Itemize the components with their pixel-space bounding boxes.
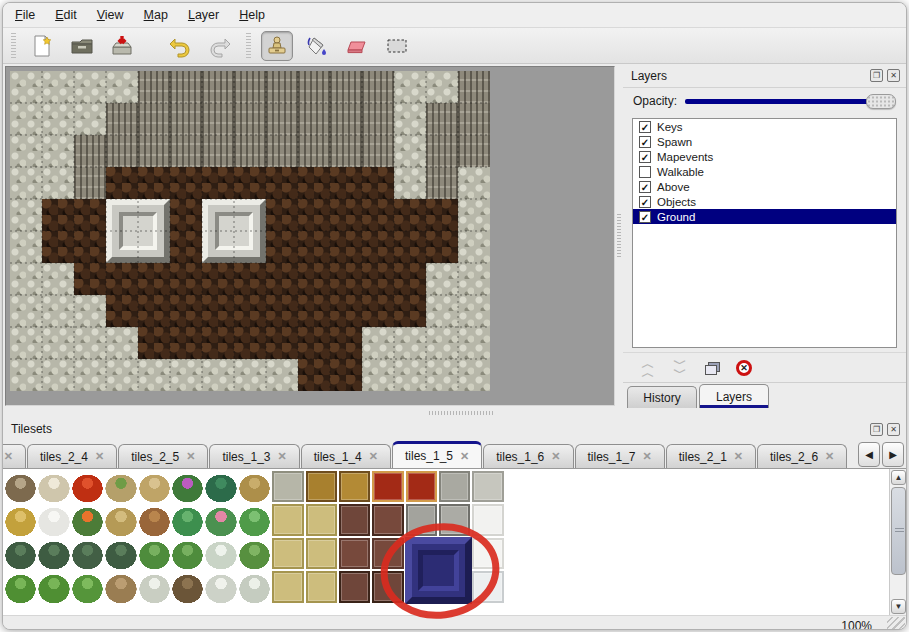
- map-tile-brown-floor[interactable]: [394, 231, 426, 263]
- layer-delete-button[interactable]: ✕: [733, 357, 755, 379]
- layer-checkbox[interactable]: ✓: [639, 121, 651, 133]
- map-tile-dark-cliff[interactable]: [106, 103, 138, 135]
- tileset-tab-tiles_1_7[interactable]: tiles_1_7✕: [575, 444, 665, 468]
- new-map-button[interactable]: [26, 31, 58, 61]
- tileset-palette[interactable]: [4, 470, 705, 604]
- palette-empty-cell: [538, 570, 571, 603]
- fill-tool-button[interactable]: [301, 31, 333, 61]
- map-tile-light-rock[interactable]: [42, 327, 74, 359]
- tab-close-icon[interactable]: ✕: [277, 450, 286, 463]
- map-tile-brown-floor[interactable]: [106, 295, 138, 327]
- map-tile-dark-cliff[interactable]: [266, 103, 298, 135]
- map-tile-dark-cliff[interactable]: [426, 167, 458, 199]
- map-tile-brown-floor[interactable]: [330, 199, 362, 231]
- palette-tile-brown-table[interactable]: [371, 503, 404, 536]
- map-tile-light-rock[interactable]: [74, 71, 106, 103]
- map-tile-dark-cliff[interactable]: [170, 103, 202, 135]
- redo-arrow-icon: [207, 34, 233, 58]
- tileset-tab-3[interactable]: 3✕: [3, 444, 26, 468]
- map-tile-brown-floor[interactable]: [298, 167, 330, 199]
- palette-tile-red-carpet[interactable]: [405, 470, 438, 503]
- map-tile-light-rock[interactable]: [394, 135, 426, 167]
- map-tile-dark-cliff[interactable]: [234, 71, 266, 103]
- map-tile-brown-floor[interactable]: [266, 231, 298, 263]
- tab-close-icon[interactable]: ✕: [186, 450, 195, 463]
- palette-tile-dark-palm-plant[interactable]: [204, 470, 237, 503]
- palette-tile-brown-tile[interactable]: [338, 537, 371, 570]
- palette-tile-small-bushes[interactable]: [4, 537, 37, 570]
- map-tile-dark-cliff[interactable]: [362, 135, 394, 167]
- map-tile-dark-cliff[interactable]: [298, 103, 330, 135]
- resize-grip-icon[interactable]: [887, 617, 905, 630]
- map-tile-light-rock[interactable]: [426, 71, 458, 103]
- palette-tile-gold-table[interactable]: [305, 470, 338, 503]
- map-tile-light-rock[interactable]: [74, 327, 106, 359]
- map-tile-dark-cliff[interactable]: [426, 103, 458, 135]
- palette-tile-stone-arch[interactable]: [438, 503, 471, 536]
- menu-item-view[interactable]: View: [97, 8, 124, 22]
- map-tile-dark-cliff[interactable]: [138, 103, 170, 135]
- tileset-tab-tiles_1_3[interactable]: tiles_1_3✕: [209, 444, 299, 468]
- palette-empty-cell: [572, 537, 605, 570]
- layer-row-walkable[interactable]: Walkable: [633, 164, 896, 179]
- map-tile-light-rock[interactable]: [458, 199, 490, 231]
- palette-tile-snowy-tree[interactable]: [204, 570, 237, 603]
- opacity-row: Opacity:: [623, 88, 906, 114]
- main-area: Layers ❐ ✕ Opacity: ✓Keys✓Spawn✓Mapevent…: [3, 64, 906, 408]
- map-tile-brown-floor[interactable]: [362, 231, 394, 263]
- palette-empty-cell: [672, 570, 705, 603]
- palette-tile-white-fluffy-tile[interactable]: [471, 570, 504, 603]
- map-tile-light-rock[interactable]: [106, 71, 138, 103]
- menu-item-map[interactable]: Map: [144, 8, 168, 22]
- dock-tabs: HistoryLayers: [623, 382, 906, 408]
- palette-tile-snowy-tree[interactable]: [238, 570, 271, 603]
- palette-tile-conifer-bush[interactable]: [37, 570, 70, 603]
- layer-checkbox[interactable]: ✓: [639, 196, 651, 208]
- map-tile-dark-cliff[interactable]: [74, 167, 106, 199]
- map-tile-light-rock[interactable]: [394, 327, 426, 359]
- map-tile-dark-cliff[interactable]: [202, 71, 234, 103]
- palette-empty-cell: [672, 503, 705, 536]
- map-tile-light-rock[interactable]: [394, 359, 426, 391]
- palette-tile-khaki-floor[interactable]: [305, 570, 338, 603]
- blue-table-tile-selected[interactable]: [405, 537, 472, 604]
- map-tile-brown-floor[interactable]: [394, 295, 426, 327]
- palette-tile-snow-mound[interactable]: [37, 503, 70, 536]
- palette-tile-small-bushes[interactable]: [37, 537, 70, 570]
- palette-tile-brown-tile[interactable]: [371, 537, 404, 570]
- tileset-tab-tiles_2_1[interactable]: tiles_2_1✕: [666, 444, 756, 468]
- map-tile-light-rock[interactable]: [138, 359, 170, 391]
- tilesets-titlebar: Tilesets ❐ ✕: [3, 418, 906, 440]
- layer-row-mapevents[interactable]: ✓Mapevents: [633, 149, 896, 164]
- map-tile-light-rock[interactable]: [42, 167, 74, 199]
- map-tile-dark-cliff[interactable]: [234, 135, 266, 167]
- palette-tile-palm-tree[interactable]: [171, 537, 204, 570]
- map-tile-light-rock[interactable]: [426, 359, 458, 391]
- palette-tile-termite-mound[interactable]: [138, 470, 171, 503]
- map-tile-brown-floor[interactable]: [106, 263, 138, 295]
- layer-checkbox[interactable]: ✓: [639, 181, 651, 193]
- palette-tile-grass-tuft[interactable]: [104, 503, 137, 536]
- map-tile-brown-floor[interactable]: [170, 327, 202, 359]
- scrollbar-thumb[interactable]: [891, 487, 906, 575]
- map-tile-brown-floor[interactable]: [202, 295, 234, 327]
- map-tile-brown-floor[interactable]: [138, 263, 170, 295]
- eraser-tool-button[interactable]: [341, 31, 373, 61]
- float-icon[interactable]: ❐: [870, 69, 883, 82]
- map-tile-light-rock[interactable]: [426, 263, 458, 295]
- layer-row-objects[interactable]: ✓Objects: [633, 194, 896, 209]
- palette-tile-palm-tree[interactable]: [138, 537, 171, 570]
- map-tile-brown-floor[interactable]: [234, 167, 266, 199]
- layer-down-button[interactable]: ﹀﹀: [669, 357, 691, 379]
- map-tile-brown-floor[interactable]: [298, 231, 330, 263]
- map-viewport[interactable]: [5, 66, 615, 406]
- map-tile-brown-floor[interactable]: [138, 295, 170, 327]
- map-tile-brown-floor[interactable]: [138, 167, 170, 199]
- map-tile-brown-floor[interactable]: [298, 295, 330, 327]
- map-tile-brown-floor[interactable]: [202, 263, 234, 295]
- tab-close-icon[interactable]: ✕: [551, 450, 560, 463]
- select-tool-button[interactable]: [381, 31, 413, 61]
- palette-tile-dark-trunk-tree[interactable]: [171, 570, 204, 603]
- opacity-slider-handle[interactable]: [866, 94, 896, 109]
- stone-block-object[interactable]: [202, 199, 266, 263]
- map-tile-brown-floor[interactable]: [298, 359, 330, 391]
- map-tile-light-rock[interactable]: [234, 359, 266, 391]
- layer-up-button[interactable]: ︿︿: [637, 357, 659, 379]
- palette-tile-lily-pad[interactable]: [171, 503, 204, 536]
- map-tile-light-rock[interactable]: [10, 71, 42, 103]
- layer-row-spawn[interactable]: ✓Spawn: [633, 134, 896, 149]
- layer-checkbox[interactable]: ✓: [639, 136, 651, 148]
- close-icon[interactable]: ✕: [887, 69, 900, 82]
- map-tile-light-rock[interactable]: [10, 327, 42, 359]
- map-tile-brown-floor[interactable]: [42, 199, 74, 231]
- map-tile-brown-floor[interactable]: [266, 327, 298, 359]
- map-tile-light-rock[interactable]: [202, 359, 234, 391]
- map-tile-brown-floor[interactable]: [170, 167, 202, 199]
- map-tile-dark-cliff[interactable]: [138, 71, 170, 103]
- map-tile-dark-cliff[interactable]: [298, 135, 330, 167]
- palette-tile-small-bushes[interactable]: [104, 537, 137, 570]
- map-tile-light-rock[interactable]: [42, 71, 74, 103]
- map-tile-dark-cliff[interactable]: [266, 71, 298, 103]
- tab-label: tiles_2_1: [679, 450, 727, 464]
- map-tile-dark-cliff[interactable]: [138, 135, 170, 167]
- palette-tile-lily-pad[interactable]: [238, 503, 271, 536]
- map-tile-dark-cliff[interactable]: [330, 103, 362, 135]
- palette-tile-stone-arch[interactable]: [405, 503, 438, 536]
- map-tile-brown-floor[interactable]: [362, 199, 394, 231]
- palette-tile-brown-table[interactable]: [338, 503, 371, 536]
- map-tile-brown-floor[interactable]: [298, 327, 330, 359]
- tileset-tab-tiles_2_4[interactable]: tiles_2_4✕: [27, 444, 117, 468]
- map-tile-brown-floor[interactable]: [426, 231, 458, 263]
- map-tile-dark-cliff[interactable]: [298, 71, 330, 103]
- stamp-icon: [265, 34, 289, 58]
- layer-checkbox[interactable]: ✓: [639, 211, 651, 223]
- layer-row-ground[interactable]: ✓Ground: [633, 209, 896, 224]
- menu-item-edit[interactable]: Edit: [55, 8, 77, 22]
- map-tile-light-rock[interactable]: [426, 327, 458, 359]
- map-tile-dark-cliff[interactable]: [458, 135, 490, 167]
- undo-button[interactable]: [164, 31, 196, 61]
- map-tile-brown-floor[interactable]: [202, 327, 234, 359]
- palette-tile-dead-trunk-tree[interactable]: [104, 570, 137, 603]
- map-tile-brown-floor[interactable]: [394, 199, 426, 231]
- menu-item-file[interactable]: File: [15, 8, 35, 22]
- palette-tile-small-bushes[interactable]: [71, 537, 104, 570]
- tileset-tab-tiles_1_6[interactable]: tiles_1_6✕: [483, 444, 573, 468]
- palette-tile-purple-flower-bush[interactable]: [171, 470, 204, 503]
- palette-tile-conifer-bush[interactable]: [71, 570, 104, 603]
- map-tile-light-rock[interactable]: [10, 199, 42, 231]
- zoom-level: 100%: [841, 619, 872, 630]
- palette-tile-brown-table-legs[interactable]: [371, 570, 404, 603]
- map-tile-brown-floor[interactable]: [330, 231, 362, 263]
- app-window: FileEditViewMapLayerHelp: [2, 2, 907, 630]
- tileset-tab-tiles_1_5[interactable]: tiles_1_5✕: [392, 441, 482, 468]
- toolbar-grip[interactable]: [246, 33, 251, 59]
- scroll-down-icon[interactable]: ▼: [891, 599, 906, 614]
- palette-tile-straw-mound[interactable]: [4, 503, 37, 536]
- map-tile-light-rock[interactable]: [42, 295, 74, 327]
- map-tile-light-rock[interactable]: [362, 327, 394, 359]
- palette-empty-cell: [638, 537, 671, 570]
- map-tile-brown-floor[interactable]: [330, 295, 362, 327]
- map-tile-light-rock[interactable]: [42, 263, 74, 295]
- map-tile-dark-cliff[interactable]: [362, 103, 394, 135]
- palette-tile-stone-floor-tile[interactable]: [271, 470, 304, 503]
- palette-tile-gray-stone-tile[interactable]: [471, 470, 504, 503]
- map-tile-light-rock[interactable]: [394, 103, 426, 135]
- palette-tile-red-carpet[interactable]: [371, 470, 404, 503]
- map-tile-brown-floor[interactable]: [42, 231, 74, 263]
- map-tile-light-rock[interactable]: [74, 295, 106, 327]
- open-button[interactable]: [66, 31, 98, 61]
- menu-item-layer[interactable]: Layer: [188, 8, 219, 22]
- opacity-slider[interactable]: [685, 93, 896, 109]
- layer-actions: ︿︿ ﹀﹀ ✕: [623, 352, 906, 382]
- horizontal-splitter[interactable]: [3, 408, 906, 418]
- palette-empty-cell: [505, 537, 538, 570]
- scroll-right-icon[interactable]: ▶: [882, 442, 904, 467]
- vertical-splitter[interactable]: [615, 64, 623, 408]
- tab-close-icon[interactable]: ✕: [460, 450, 469, 463]
- map-tile-light-rock[interactable]: [10, 103, 42, 135]
- layer-row-keys[interactable]: ✓Keys: [633, 119, 896, 134]
- map-tile-brown-floor[interactable]: [362, 263, 394, 295]
- map-tile-brown-floor[interactable]: [266, 295, 298, 327]
- map-tile-dark-cliff[interactable]: [106, 135, 138, 167]
- map-tile-light-rock[interactable]: [74, 359, 106, 391]
- palette-tile-khaki-floor[interactable]: [271, 570, 304, 603]
- palette-tile-khaki-floor[interactable]: [271, 503, 304, 536]
- map-tile-light-rock[interactable]: [458, 263, 490, 295]
- map-tile-dark-cliff[interactable]: [362, 71, 394, 103]
- map-tile-light-rock[interactable]: [10, 359, 42, 391]
- map-tile-dark-cliff[interactable]: [202, 103, 234, 135]
- palette-tile-white-fluffy-tile[interactable]: [471, 503, 504, 536]
- map-tile-brown-floor[interactable]: [234, 295, 266, 327]
- map-tile-brown-floor[interactable]: [170, 231, 202, 263]
- close-icon[interactable]: ✕: [887, 423, 900, 436]
- map-tile-light-rock[interactable]: [10, 231, 42, 263]
- map-tile-light-rock[interactable]: [106, 359, 138, 391]
- map-tile-brown-floor[interactable]: [394, 263, 426, 295]
- map-tile-brown-floor[interactable]: [234, 327, 266, 359]
- map-tile-brown-floor[interactable]: [234, 263, 266, 295]
- map-tile-light-rock[interactable]: [426, 295, 458, 327]
- map-tile-brown-floor[interactable]: [266, 199, 298, 231]
- map-tile-light-rock[interactable]: [458, 359, 490, 391]
- redo-button[interactable]: [204, 31, 236, 61]
- palette-tile-dry-plant[interactable]: [238, 470, 271, 503]
- map-tile-light-rock[interactable]: [394, 167, 426, 199]
- map-tile-brown-floor[interactable]: [266, 263, 298, 295]
- scroll-up-icon[interactable]: ▲: [891, 470, 906, 485]
- map-tile-brown-floor[interactable]: [362, 295, 394, 327]
- map-tile-dark-cliff[interactable]: [458, 103, 490, 135]
- map-tile-light-rock[interactable]: [42, 359, 74, 391]
- map-tile-brown-floor[interactable]: [202, 167, 234, 199]
- map-tile-brown-floor[interactable]: [138, 327, 170, 359]
- palette-tile-brown-table-legs[interactable]: [338, 570, 371, 603]
- palette-scrollbar[interactable]: ▲ ▼: [889, 469, 906, 615]
- palette-tile-white-fluffy-tile[interactable]: [471, 537, 504, 570]
- tab-close-icon[interactable]: ✕: [734, 450, 743, 463]
- palette-tile-khaki-floor[interactable]: [271, 537, 304, 570]
- map-tile-brown-floor[interactable]: [266, 167, 298, 199]
- status-bar: 100%: [3, 615, 906, 630]
- map-tile-dark-cliff[interactable]: [266, 135, 298, 167]
- map-tile-dark-cliff[interactable]: [202, 135, 234, 167]
- map-canvas-panel: [3, 64, 615, 408]
- map-tile-light-rock[interactable]: [74, 103, 106, 135]
- map-tile-brown-floor[interactable]: [330, 359, 362, 391]
- scroll-left-icon[interactable]: ◀: [858, 442, 880, 467]
- map-tile-dark-cliff[interactable]: [330, 135, 362, 167]
- tileset-tab-tiles_2_6[interactable]: tiles_2_6✕: [757, 444, 847, 468]
- palette-empty-cell: [638, 503, 671, 536]
- menu-item-help[interactable]: Help: [239, 8, 265, 22]
- map-tile-light-rock[interactable]: [458, 295, 490, 327]
- palette-tile-snowy-palm-tree[interactable]: [204, 537, 237, 570]
- map-tile-brown-floor[interactable]: [330, 167, 362, 199]
- layer-checkbox[interactable]: [639, 166, 651, 178]
- map-tile-light-rock[interactable]: [42, 135, 74, 167]
- tab-close-icon[interactable]: ✕: [643, 450, 652, 463]
- map-tile-light-rock[interactable]: [170, 359, 202, 391]
- map-tile-light-rock[interactable]: [10, 263, 42, 295]
- tab-history[interactable]: History: [627, 386, 697, 408]
- map-canvas[interactable]: [10, 71, 490, 391]
- layer-duplicate-button[interactable]: [701, 357, 723, 379]
- map-tile-brown-floor[interactable]: [426, 199, 458, 231]
- map-tile-light-rock[interactable]: [458, 231, 490, 263]
- map-tile-dark-cliff[interactable]: [74, 135, 106, 167]
- map-tile-brown-floor[interactable]: [362, 167, 394, 199]
- map-tile-dark-cliff[interactable]: [170, 71, 202, 103]
- map-tile-dark-cliff[interactable]: [458, 71, 490, 103]
- palette-tile-branch-tree[interactable]: [37, 470, 70, 503]
- map-tile-light-rock[interactable]: [458, 327, 490, 359]
- layer-row-above[interactable]: ✓Above: [633, 179, 896, 194]
- tab-close-icon[interactable]: ✕: [95, 450, 104, 463]
- palette-tile-conifer-bush[interactable]: [4, 570, 37, 603]
- map-tile-light-rock[interactable]: [10, 135, 42, 167]
- selection-rect-icon: [384, 34, 410, 58]
- map-tile-brown-floor[interactable]: [330, 263, 362, 295]
- tab-close-icon[interactable]: ✕: [369, 450, 378, 463]
- palette-tile-pink-flower-lily[interactable]: [204, 503, 237, 536]
- map-tile-light-rock[interactable]: [362, 359, 394, 391]
- map-tile-light-rock[interactable]: [10, 167, 42, 199]
- toolbar-grip[interactable]: [11, 33, 16, 59]
- tileset-tab-tiles_2_5[interactable]: tiles_2_5✕: [118, 444, 208, 468]
- palette-tile-palm-tree[interactable]: [238, 537, 271, 570]
- map-tile-brown-floor[interactable]: [298, 263, 330, 295]
- map-tile-light-rock[interactable]: [394, 71, 426, 103]
- palette-tile-rafflesia-flower[interactable]: [71, 470, 104, 503]
- map-tile-brown-floor[interactable]: [74, 263, 106, 295]
- tab-layers[interactable]: Layers: [699, 384, 769, 408]
- layer-list: ✓Keys✓Spawn✓MapeventsWalkable✓Above✓Obje…: [632, 118, 897, 348]
- tileset-tab-tiles_1_4[interactable]: tiles_1_4✕: [301, 444, 391, 468]
- float-icon[interactable]: ❐: [870, 423, 883, 436]
- map-tile-dark-cliff[interactable]: [234, 103, 266, 135]
- stamp-tool-button[interactable]: [261, 31, 293, 61]
- map-tile-brown-floor[interactable]: [170, 199, 202, 231]
- palette-empty-cell: [605, 503, 638, 536]
- stone-block-object[interactable]: [106, 199, 170, 263]
- map-tile-light-rock[interactable]: [106, 327, 138, 359]
- layer-checkbox[interactable]: ✓: [639, 151, 651, 163]
- palette-tile-khaki-floor[interactable]: [305, 537, 338, 570]
- splitter-grip: [617, 214, 621, 258]
- tab-label: tiles_1_5: [405, 449, 453, 463]
- map-tile-brown-floor[interactable]: [330, 327, 362, 359]
- map-tile-dark-cliff[interactable]: [170, 135, 202, 167]
- palette-tile-grass-stump[interactable]: [104, 470, 137, 503]
- palette-tile-gray-stone-tile[interactable]: [438, 470, 471, 503]
- map-tile-brown-floor[interactable]: [106, 167, 138, 199]
- map-tile-light-rock[interactable]: [10, 295, 42, 327]
- palette-tile-flower-bush[interactable]: [71, 503, 104, 536]
- map-tile-light-rock[interactable]: [458, 167, 490, 199]
- palette-tile-fallen-leaves[interactable]: [138, 503, 171, 536]
- map-tile-brown-floor[interactable]: [74, 199, 106, 231]
- save-button[interactable]: [106, 31, 138, 61]
- tab-close-icon[interactable]: ✕: [4, 450, 13, 463]
- map-tile-brown-floor[interactable]: [298, 199, 330, 231]
- palette-tile-snowy-tree[interactable]: [138, 570, 171, 603]
- map-tile-brown-floor[interactable]: [74, 231, 106, 263]
- map-tile-light-rock[interactable]: [266, 359, 298, 391]
- palette-tile-khaki-floor[interactable]: [305, 503, 338, 536]
- palette-tile-dead-tree[interactable]: [4, 470, 37, 503]
- map-tile-brown-floor[interactable]: [170, 263, 202, 295]
- map-tile-light-rock[interactable]: [42, 103, 74, 135]
- map-tile-brown-floor[interactable]: [170, 295, 202, 327]
- palette-tile-gold-table[interactable]: [338, 470, 371, 503]
- map-tile-dark-cliff[interactable]: [330, 71, 362, 103]
- tab-close-icon[interactable]: ✕: [825, 450, 834, 463]
- map-tile-dark-cliff[interactable]: [426, 135, 458, 167]
